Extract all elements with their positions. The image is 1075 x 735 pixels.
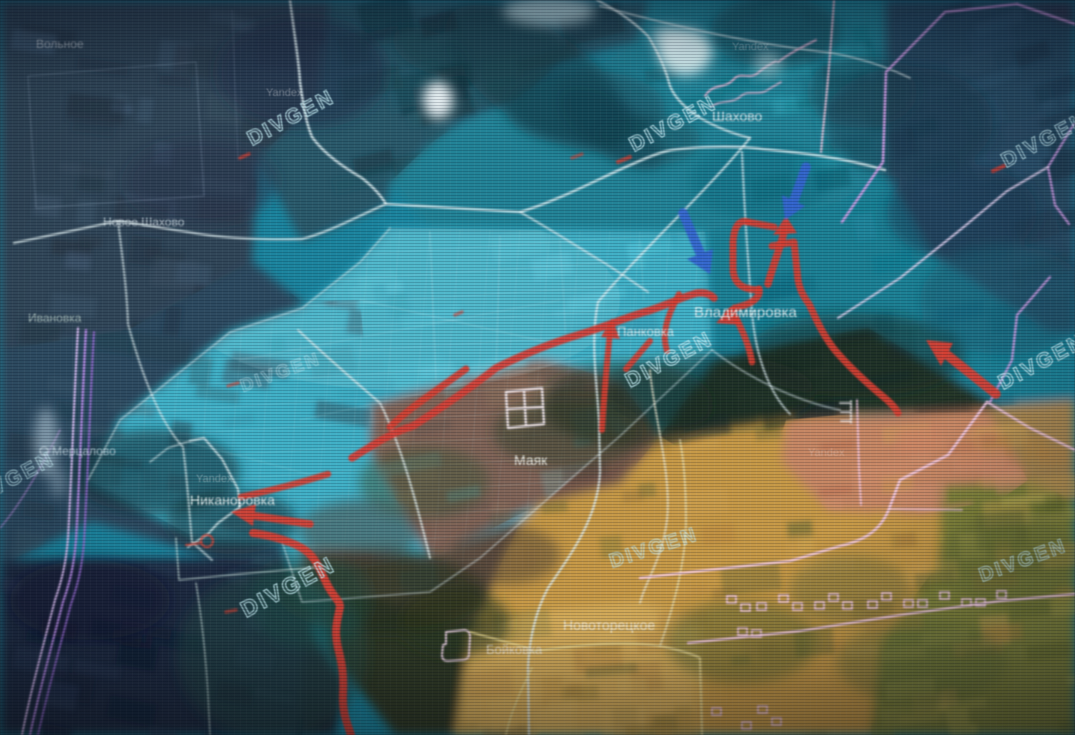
svg-text:Yandex: Yandex bbox=[196, 473, 233, 485]
svg-text:Yandex: Yandex bbox=[732, 41, 769, 53]
svg-text:Мерцалово: Мерцалово bbox=[52, 444, 116, 458]
svg-text:Маяк: Маяк bbox=[514, 452, 548, 468]
svg-text:Вольное: Вольное bbox=[36, 37, 84, 51]
svg-text:Панковка: Панковка bbox=[617, 324, 675, 339]
svg-text:Новое Шахово: Новое Шахово bbox=[103, 215, 185, 229]
svg-text:Yandex: Yandex bbox=[808, 447, 845, 459]
svg-text:Владимировка: Владимировка bbox=[694, 304, 797, 321]
svg-text:Никаноровка: Никаноровка bbox=[190, 492, 275, 508]
svg-text:Ивановка: Ивановка bbox=[28, 311, 82, 325]
svg-text:Бойковка: Бойковка bbox=[486, 642, 543, 657]
svg-text:Yandex: Yandex bbox=[266, 87, 303, 99]
svg-text:Новоторецкое: Новоторецкое bbox=[563, 617, 655, 633]
